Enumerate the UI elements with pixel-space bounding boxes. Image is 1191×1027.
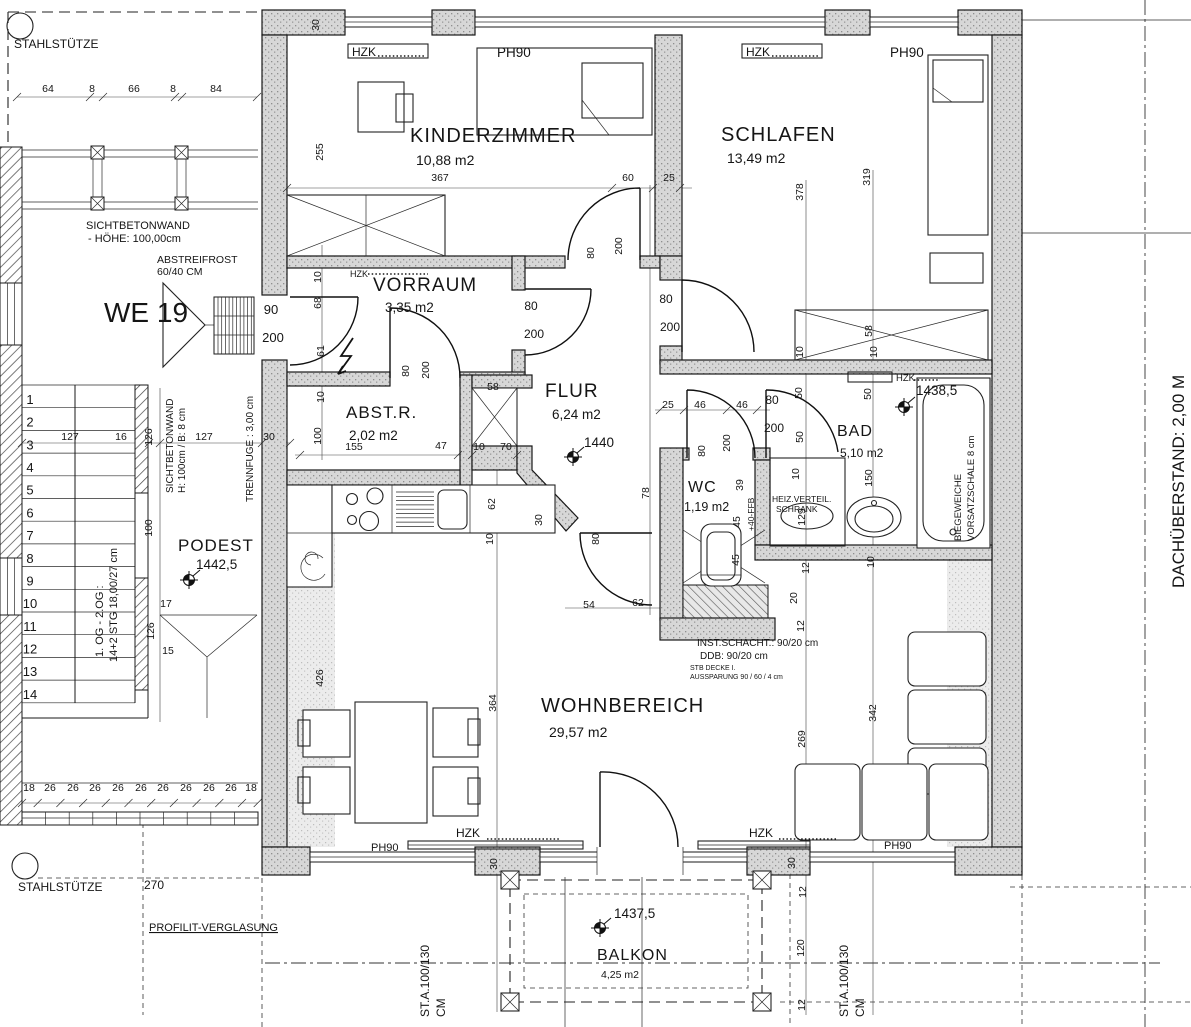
- annotation: HZK: [352, 45, 376, 59]
- room-label-abst-r-: ABST.R.: [346, 403, 417, 422]
- balcony-door-opening: [597, 849, 683, 864]
- dimension: 342: [867, 704, 879, 722]
- annotation: ST.A.100/130: [418, 945, 432, 1017]
- abstreifrost-grate-icon: [214, 297, 254, 354]
- dimension: 127: [195, 431, 213, 443]
- dimension: 66: [128, 83, 140, 95]
- dimension: 100: [312, 427, 324, 445]
- dimension: 58: [863, 325, 875, 337]
- dimension: 319: [861, 168, 873, 186]
- annotation: HZK: [896, 373, 916, 384]
- dimension: 30: [310, 19, 322, 31]
- chair: [433, 767, 478, 816]
- dimension: 200: [262, 330, 284, 345]
- annotation: PH90: [884, 840, 912, 852]
- dimension: 50: [794, 431, 806, 443]
- annotation: PROFILIT-VERGLASUNG: [149, 922, 278, 934]
- dimension: 200: [524, 327, 544, 341]
- dimension: 25: [662, 399, 674, 411]
- annotation: STAHLSTÜTZE: [18, 880, 102, 894]
- dimension: 64: [42, 83, 54, 95]
- dimension: 12: [795, 620, 807, 632]
- dimension: 255: [314, 143, 326, 161]
- dimension: 200: [660, 320, 680, 334]
- room-label-vorraum: VORRAUM: [373, 275, 477, 296]
- dimension: 50: [862, 388, 874, 400]
- annotation: STB DECKE I.: [690, 665, 736, 672]
- dimension: 15: [162, 645, 174, 657]
- dimension: 30: [263, 431, 275, 443]
- annotation: PH90: [371, 842, 399, 854]
- annotation: HZK: [350, 269, 368, 279]
- level-marker-icon: [591, 918, 611, 937]
- annotation: AUSSPARUNG 90 / 60 / 4 cm: [690, 674, 783, 681]
- room-label-schlafen: SCHLAFEN: [721, 124, 836, 146]
- dimension: 30: [786, 857, 798, 869]
- dimension: 18: [23, 782, 35, 794]
- dimension: 39: [734, 479, 746, 491]
- room-label-bad: BAD: [837, 423, 873, 440]
- dimension: 26: [67, 782, 79, 794]
- dimension: 25: [663, 172, 675, 184]
- concrete-wall-left: [0, 147, 22, 825]
- level-marker-icon: [895, 397, 915, 416]
- stair-step-number: 4: [26, 460, 33, 475]
- dimension: 46: [694, 399, 706, 411]
- annotation: 60/40 CM: [157, 266, 203, 278]
- balcony: [501, 871, 771, 1011]
- window-left-2: [0, 558, 22, 615]
- stair-step-number: 10: [23, 596, 37, 611]
- dimension: 45: [731, 516, 743, 528]
- annotation: 1. OG - 2.OG :: [94, 585, 106, 657]
- room-area: 29,57 m2: [549, 724, 608, 740]
- kitchen-tall-cabinet: [287, 485, 332, 587]
- dimension: 10: [868, 346, 880, 358]
- dimension: 269: [796, 730, 808, 748]
- dimension: 80: [765, 393, 779, 407]
- level-value: 1438,5: [916, 383, 957, 398]
- dimension: 60: [622, 172, 634, 184]
- stair-step-number: 2: [26, 415, 33, 430]
- stair-step-number: 12: [23, 641, 37, 656]
- annotation: DACHÜBERSTAND: 2,00 M: [1169, 375, 1188, 588]
- dimension: 10: [473, 441, 485, 453]
- dimension: 84: [210, 83, 222, 95]
- level-value: 1442,5: [196, 557, 237, 572]
- dimension: 10: [794, 346, 806, 358]
- annotation: BIEGEWEICHE: [953, 474, 964, 541]
- stair-step-number: 8: [26, 551, 33, 566]
- dimension: 10: [865, 556, 877, 568]
- stair-step-number: 5: [26, 483, 33, 498]
- inst-schacht: [683, 585, 768, 618]
- stair-step-number: 1: [26, 392, 33, 407]
- annotation: 270: [144, 878, 164, 892]
- dimension: 70: [500, 441, 512, 453]
- dimension: 26: [203, 782, 215, 794]
- dimension: 10: [315, 391, 327, 403]
- dimension: 126: [145, 622, 157, 640]
- dimension: 54: [583, 599, 595, 611]
- window-left-1: [0, 283, 22, 345]
- floor-plan-svg: KINDERZIMMER10,88 m2SCHLAFEN13,49 m2VORR…: [0, 0, 1191, 1027]
- dimension: 58: [487, 381, 499, 393]
- dimension: 80: [400, 365, 412, 377]
- room-area: 1,19 m2: [684, 500, 729, 514]
- room-area: 5,10 m2: [840, 446, 884, 460]
- annotation: CM: [434, 998, 448, 1017]
- dimension: 16: [115, 431, 127, 443]
- level-marker-icon: [564, 447, 584, 466]
- room-label-wc: WC: [688, 479, 717, 496]
- annotation: SICHTBETONWAND: [165, 399, 176, 493]
- dimension: 10: [312, 271, 324, 283]
- room-area: 10,88 m2: [416, 152, 475, 168]
- annotation: SICHTBETONWAND: [86, 220, 190, 232]
- room-label-balkon: BALKON: [597, 947, 668, 964]
- room-label-podest: PODEST: [178, 536, 254, 555]
- dimension: 12: [800, 562, 812, 574]
- annotation: ST.A.100/130: [837, 945, 851, 1017]
- dimension: 20: [788, 592, 800, 604]
- dimension: 150: [863, 469, 875, 487]
- room-area: 13,49 m2: [727, 150, 786, 166]
- dimension: 46: [736, 399, 748, 411]
- dimension: 90: [264, 302, 278, 317]
- annotation: PH90: [890, 45, 924, 60]
- dimension: 378: [794, 183, 806, 201]
- room-area: 4,25 m2: [601, 969, 639, 981]
- level-value: 1440: [584, 435, 614, 450]
- stair-numbers: 1234567891011121314: [23, 392, 37, 702]
- annotation: INST.SCHACHT.: 90/20 cm: [697, 638, 818, 649]
- annotation: HZK: [746, 45, 770, 59]
- dimension: 12: [797, 886, 809, 898]
- dimension: 364: [487, 694, 499, 712]
- level-value: 1437,5: [614, 906, 655, 921]
- schlafen-door: [682, 280, 754, 352]
- room-label-flur: FLUR: [545, 381, 599, 402]
- dimension: 45: [730, 554, 742, 566]
- dimension: 61: [315, 345, 327, 357]
- steel-column-top-icon: [7, 13, 33, 39]
- dimension: 80: [585, 247, 597, 259]
- annotation: VORSATZSCHALE 8 cm: [966, 436, 977, 541]
- dimension: 8: [89, 83, 95, 95]
- sofa: [795, 632, 988, 840]
- dimension: 100: [143, 519, 155, 537]
- dimension: 47: [435, 440, 447, 452]
- dimension: 26: [180, 782, 192, 794]
- dimension: 200: [420, 361, 432, 379]
- staircase-block: [0, 13, 258, 879]
- kitchen-counter: [332, 485, 555, 533]
- room-area: 6,24 m2: [552, 407, 601, 422]
- dimension: 18: [245, 782, 257, 794]
- dimension: 80: [590, 533, 602, 545]
- dimension: 62: [632, 597, 644, 609]
- railing-posts: [91, 146, 188, 210]
- dimension: 200: [613, 237, 625, 255]
- annotation: ABSTREIFROST: [157, 254, 238, 266]
- annotation: STAHLSTÜTZE: [14, 37, 98, 51]
- dimension: 426: [314, 669, 326, 687]
- dimension: 68: [312, 297, 324, 309]
- room-label-wohnbereich: WOHNBEREICH: [541, 695, 704, 717]
- annotation: PH90: [497, 45, 531, 60]
- dimension: 17: [160, 598, 172, 610]
- bed-kinderzimmer: [477, 48, 652, 135]
- room-area: 3,35 m2: [385, 300, 434, 315]
- stair-step-number: 14: [23, 687, 37, 702]
- room-label-kinderzimmer: KINDERZIMMER: [410, 125, 576, 147]
- dimension: 10: [790, 468, 802, 480]
- stair-step-number: 7: [26, 528, 33, 543]
- nightstand: [930, 253, 983, 283]
- dimension: 80: [696, 445, 708, 457]
- floor-plan-canvas: KINDERZIMMER10,88 m2SCHLAFEN13,49 m2VORR…: [0, 0, 1191, 1027]
- stair-step-number: 13: [23, 664, 37, 679]
- annotation: 14+2 STG 18,00/27 cm: [108, 548, 120, 662]
- dimension: 80: [524, 299, 538, 313]
- dimension: 367: [431, 172, 449, 184]
- dimension: 26: [44, 782, 56, 794]
- dimension: 126: [143, 428, 155, 446]
- dimension: 30: [533, 514, 545, 526]
- annotation: WE 19: [104, 297, 188, 328]
- stair-step-number: 11: [23, 619, 37, 634]
- kinderzimmer-door: [568, 188, 640, 260]
- dimension: 50: [793, 387, 805, 399]
- annotation: HZK: [456, 826, 480, 840]
- dimension: 200: [721, 434, 733, 452]
- desk: [358, 82, 404, 132]
- dimension: 200: [764, 421, 784, 435]
- dimension: 10: [484, 533, 496, 545]
- stair-step-number: 6: [26, 505, 33, 520]
- dimension: 12: [796, 999, 808, 1011]
- annotation: HEIZ.VERTEIL.: [772, 494, 831, 504]
- balkon-door: [600, 772, 678, 847]
- annotation: +40-FFB: [746, 497, 756, 531]
- annotation: HZK: [749, 826, 773, 840]
- annotation: SCHRANK: [776, 504, 818, 514]
- dimension: 26: [135, 782, 147, 794]
- annotation: TRENNFUGE : 3,00 cm: [245, 396, 256, 502]
- dimension: 78: [640, 487, 652, 499]
- dimension: 80: [659, 292, 673, 306]
- stair-step-number: 3: [26, 437, 33, 452]
- dimension: 62: [486, 498, 498, 510]
- dining-table: [355, 702, 427, 823]
- steel-column-bottom-icon: [12, 853, 38, 879]
- annotation: DDB: 90/20 cm: [700, 651, 768, 662]
- dimension: 127: [61, 431, 79, 443]
- dimension: 26: [225, 782, 237, 794]
- dimension: 26: [157, 782, 169, 794]
- annotation: CM: [853, 998, 867, 1017]
- annotation: H: 100cm / B: 8 cm: [177, 408, 188, 493]
- dimension: 155: [345, 441, 363, 453]
- dimension: 30: [488, 858, 500, 870]
- dimension: 26: [89, 782, 101, 794]
- annotation: - HÖHE: 100,00cm: [88, 233, 181, 245]
- stair-step-number: 9: [26, 573, 33, 588]
- dimension: 8: [170, 83, 176, 95]
- furniture: [287, 48, 990, 840]
- bed-schlafen: [928, 55, 988, 235]
- chair: [433, 708, 478, 757]
- dimension: 26: [112, 782, 124, 794]
- level-marker-icon: [180, 570, 200, 589]
- dimension: 120: [795, 939, 807, 957]
